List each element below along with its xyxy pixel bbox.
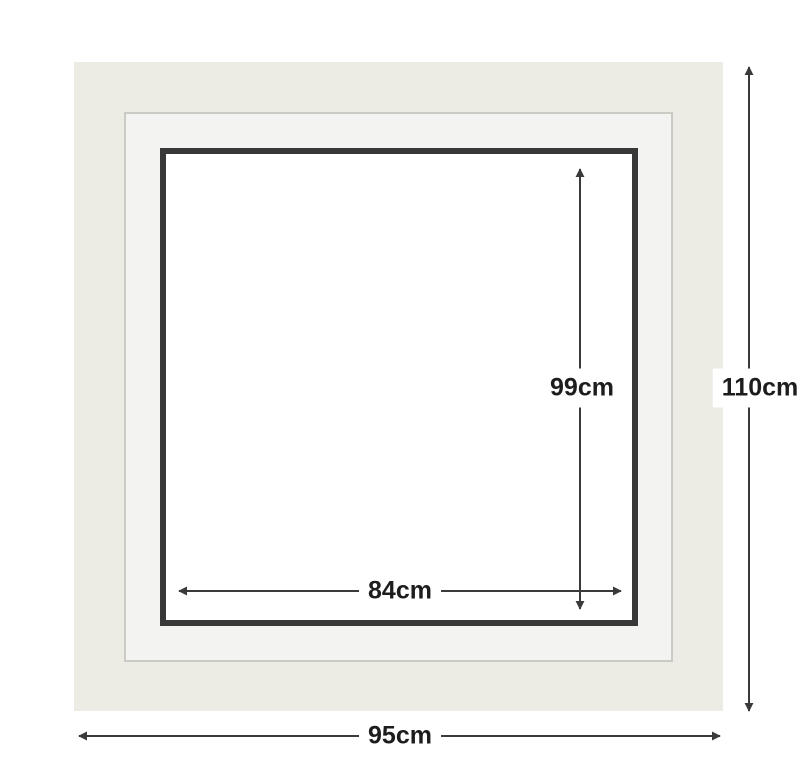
dimension-label-opening-height: 99cm <box>541 369 623 408</box>
dimension-label-opening-width: 84cm <box>359 572 441 611</box>
dimension-label-outer-width: 95cm <box>359 717 441 756</box>
frame-dimension-diagram: 99cm 110cm 84cm 95cm <box>0 0 800 778</box>
dimension-arrows-layer <box>0 0 800 778</box>
dimension-label-outer-height: 110cm <box>713 369 800 408</box>
